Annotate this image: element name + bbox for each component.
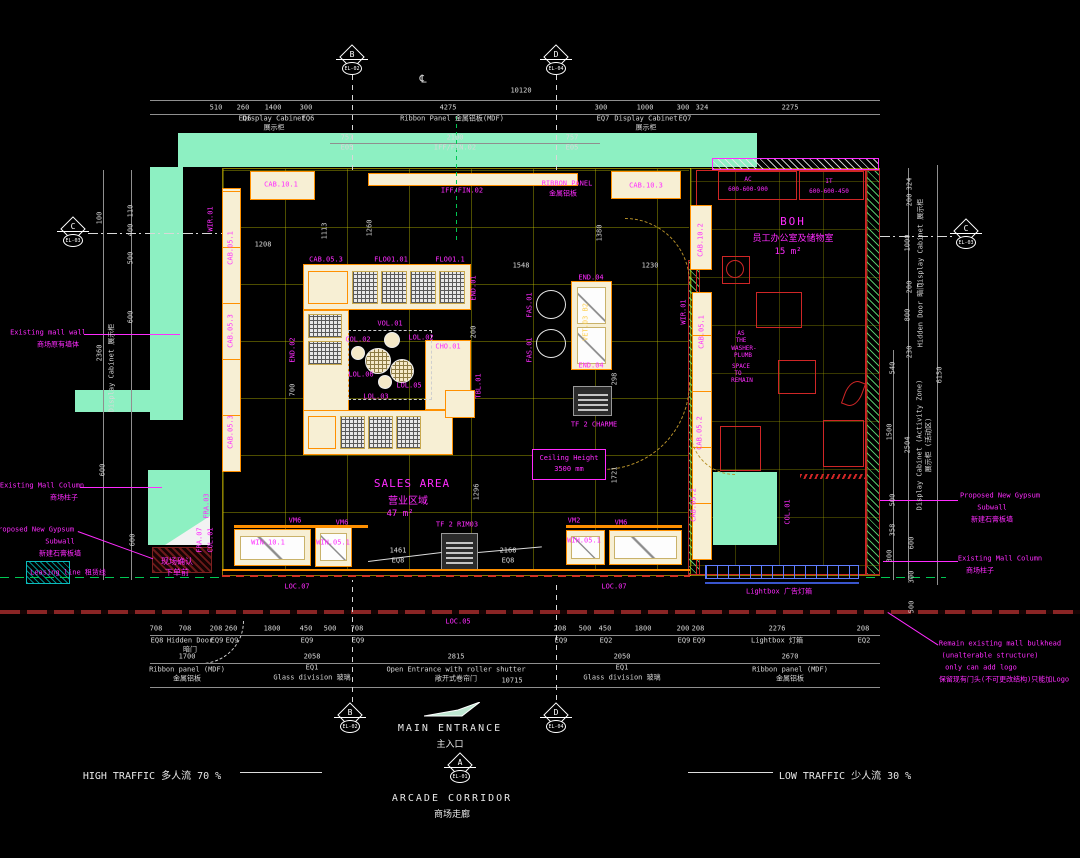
marker-code: EL-02 (342, 62, 362, 75)
cad-text: CAB.05.1 (228, 231, 235, 265)
cad-text: CAB.05.1 (699, 315, 706, 349)
cad-text: 2275 (782, 105, 799, 112)
cad-text: FLO01.1 (435, 257, 465, 264)
cad-text: 708 (351, 626, 364, 633)
cad-text: 208 (857, 626, 870, 633)
annotation-proposed-gypsum-right: Proposed New Gypsum (960, 493, 1040, 500)
stool[interactable] (378, 375, 392, 389)
cad-text: CAB.05.3 (309, 257, 343, 264)
boh-washer (778, 360, 816, 394)
cad-text: 2670 (782, 654, 799, 661)
cad-text: 现场确认 (161, 558, 193, 566)
cad-text: 260 (237, 105, 250, 112)
cad-text: 600-600-450 (809, 189, 849, 195)
bulkhead-hatch-top (712, 158, 879, 170)
cad-text: 商场柱子 (966, 568, 994, 575)
traffic-line (240, 772, 322, 773)
cad-text: 450 (599, 626, 612, 633)
cad-text: EQ9 (693, 638, 706, 645)
cad-text: 208 (210, 626, 223, 633)
cad-text: 600 (130, 534, 137, 547)
lightbox-underline (705, 582, 859, 584)
cad-text: 324 (696, 105, 709, 112)
cad-text: 300 (887, 550, 894, 563)
cad-text: WIH.05.1 (567, 538, 601, 545)
cad-text: Lightbox 灯箱 (751, 638, 803, 645)
cad-text: LOL.03 (363, 394, 388, 401)
cad-text: 1500 (887, 424, 894, 441)
cad-text: VOL.01 (377, 321, 402, 328)
cad-text: CAB.05.2 (697, 416, 704, 450)
cad-text: 708 (179, 626, 192, 633)
existing-mall-wall-left (150, 167, 183, 420)
cad-text: 2050 (614, 654, 631, 661)
marker-dropline (556, 74, 557, 170)
cad-text: Open Entrance with roller shutter (386, 667, 525, 674)
cad-text: 757 (566, 135, 579, 142)
display-tray (352, 271, 378, 304)
cab-10-1-label: CAB.10.1 (264, 182, 298, 189)
cad-text: 1296 (474, 484, 481, 501)
cad-text: 510 (210, 105, 223, 112)
cad-text: 208 (554, 626, 567, 633)
cad-text: 10120 (510, 88, 531, 95)
display-tray (368, 416, 393, 449)
cad-text: 200 (907, 281, 914, 294)
floorplan-canvas: Ceiling Height 3500 mm B EL-02 D EL-04 C… (0, 0, 1080, 858)
cad-text: 1400 (265, 105, 282, 112)
cad-text: EQ9 (678, 638, 691, 645)
boh-title: BOH (780, 215, 806, 228)
cad-text: EQ8 (392, 558, 405, 565)
cad-text: 800 (905, 309, 912, 322)
cad-text: 金属铝板 (173, 676, 201, 683)
marker-dropline (352, 580, 353, 712)
cad-text: 110 (128, 205, 135, 218)
glass-pane (320, 533, 347, 561)
cad-text: 2100 (447, 135, 464, 142)
cad-text: 展示柜 (264, 125, 285, 132)
boh-cabinet (756, 292, 802, 328)
wall-hatch-right (866, 170, 880, 575)
cad-text: Ribbon panel (MDF) (752, 667, 828, 674)
cad-text: 1721 (612, 467, 619, 484)
cad-text: EQ7 (597, 116, 610, 123)
display-tray (396, 416, 421, 449)
cad-text: EQ1 (616, 665, 629, 672)
cad-text: LOC.07 (284, 584, 309, 591)
cad-text: 1000 (637, 105, 654, 112)
boh-size: 15 m² (774, 247, 801, 257)
cad-text: CAB.10.2 (698, 223, 705, 257)
cad-text: IFF/FIN.02 (441, 188, 483, 195)
leasing-line-right (866, 577, 946, 578)
display-tray (439, 271, 465, 304)
cad-text: LOL.02 (408, 335, 433, 342)
cad-text: EQ9 (211, 638, 224, 645)
cad-text: 708 (150, 626, 163, 633)
boh-room-it (799, 171, 864, 200)
chair[interactable] (536, 290, 566, 319)
cad-text: TF 2 CHARME (571, 422, 617, 429)
sales-area-cn: 营业区域 (388, 492, 428, 507)
storefront-line (222, 569, 690, 571)
arcade-corridor-cn: 商场走廊 (434, 807, 470, 820)
wavy-line (800, 474, 866, 479)
cad-text: 10715 (501, 678, 522, 685)
traffic-line (688, 772, 773, 773)
cad-text: (unalterable structure) (942, 653, 1039, 660)
cad-text: Hidden Door (167, 638, 213, 645)
cad-text: FAS.01 (527, 292, 534, 317)
cad-text: 600 (909, 537, 916, 550)
device-detail (446, 539, 473, 564)
cad-text: 2276 (769, 626, 786, 633)
cad-text: EQ6 (302, 116, 315, 123)
glass-pane (614, 536, 677, 559)
cad-text: EQ2 (600, 638, 613, 645)
cad-text: 100 (97, 212, 104, 225)
cad-text: VET.03 B2 (583, 303, 590, 341)
cad-text: CHO.01 (435, 344, 460, 351)
cad-text: 保留现有门头(不可更改结构)只能加Logo (939, 677, 1069, 684)
cad-text: COL.01 (785, 499, 792, 524)
cad-text: IT (825, 179, 832, 185)
cad-text: 757 (341, 135, 354, 142)
cad-text: Glass division 玻璃 (273, 675, 350, 682)
ceiling-height-line2: 3500 mm (533, 464, 605, 475)
cad-text: LOC.05 (445, 619, 470, 626)
cad-text: FLO01.01 (374, 257, 408, 264)
main-entrance-cn: 主入口 (436, 737, 463, 750)
cad-text: 1113 (322, 223, 329, 240)
cad-text: COL.01 (208, 527, 215, 552)
cad-text: 4275 (440, 105, 457, 112)
island-step[interactable] (445, 390, 475, 418)
cad-text: 324 (907, 178, 914, 191)
cad-text: 200 (677, 626, 690, 633)
cad-text: E05 (341, 145, 354, 152)
cad-text: 450 (300, 626, 313, 633)
cad-text: 1000 (905, 235, 912, 252)
cad-text: EQ9 (555, 638, 568, 645)
cad-text: 商场原有墙体 (37, 342, 79, 349)
cad-text: END.01 (471, 275, 478, 300)
cad-text: 新建石膏板墙 (39, 551, 81, 558)
leader-line (80, 487, 162, 488)
chair[interactable] (536, 329, 566, 358)
cad-text: 300 (300, 105, 313, 112)
cad-text: 300 (595, 105, 608, 112)
stool[interactable] (351, 346, 365, 360)
cad-text: 1230 (642, 263, 659, 270)
cad-text: 1260 (367, 220, 374, 237)
cad-text: Display Cabinet (614, 116, 677, 123)
cad-text: WIN.05.1 (316, 540, 350, 547)
cad-text: Hidden Door 暗门 (918, 283, 925, 348)
cad-text: 下单前 (165, 569, 189, 577)
cad-text: TBL.01 (476, 373, 483, 398)
cad-text: 500 (128, 252, 135, 265)
main-entrance-label: MAIN ENTRANCE (398, 723, 502, 734)
cad-text: VM6 (289, 518, 302, 525)
cad-text: EQ9 (226, 638, 239, 645)
cad-text: COL.02 (345, 337, 370, 344)
cad-text: CAB.10.3 (629, 183, 663, 190)
entrance-swing-arc (158, 578, 244, 664)
cad-text: 600-600-900 (728, 187, 768, 193)
leasing-line-left (0, 577, 222, 578)
cad-text: 500 (324, 626, 337, 633)
cad-text: CAB.05.2 (691, 488, 698, 522)
round-table[interactable] (390, 359, 414, 383)
cad-text: EQ8 (151, 638, 164, 645)
cad-text: 600 (128, 311, 135, 324)
cad-text: ℄ (419, 74, 426, 85)
ceiling-height-line1: Ceiling Height (533, 453, 605, 464)
marker-dropline (556, 580, 557, 710)
cad-text: 358 (890, 524, 897, 537)
display-tray (381, 271, 407, 304)
cad-text: 2504 (905, 437, 912, 454)
cad-text: EQ9 (352, 638, 365, 645)
display-tray (340, 416, 365, 449)
cad-text: END.02 (290, 337, 297, 362)
annotation-existing-mall-column-left: Existing Mall Column (0, 483, 84, 490)
cad-text: LOC.07 (601, 584, 626, 591)
cad-text: 300 (677, 105, 690, 112)
cad-text: END.04 (578, 363, 603, 370)
boh-desk (823, 420, 864, 467)
arcade-corridor-label: ARCADE CORRIDOR (392, 793, 512, 804)
cad-text: 金属铝板 (549, 191, 577, 198)
cad-text: LOL.05 (396, 383, 421, 390)
cad-text: 1208 (255, 242, 272, 249)
cad-text: 500 (890, 494, 897, 507)
marker-letter: B (343, 51, 361, 59)
cad-text: TF 2 RIM03 (436, 522, 478, 529)
cad-text: VM2 (568, 518, 581, 525)
cad-text: 208 (692, 626, 705, 633)
cad-text: 新建石膏板墙 (971, 517, 1013, 524)
display-tray (308, 314, 342, 338)
cad-text: WIR.01 (681, 299, 688, 324)
cad-text: Display Cabinet (Activity Zone) (917, 380, 924, 511)
cad-text: END.04 (578, 275, 603, 282)
sales-area-title: SALES AREA (374, 477, 450, 490)
cad-text: CAB.05.3 (228, 415, 235, 449)
cad-text: 540 (890, 362, 897, 375)
cad-text: 600 (100, 464, 107, 477)
cad-text: RIBBON PANEL (542, 181, 593, 188)
cad-text: THE (736, 338, 747, 344)
cad-text: 金属铝板 (776, 676, 804, 683)
marker-dashdot (88, 233, 222, 234)
cad-text: EQ2 (858, 638, 871, 645)
cad-text: 1700 (179, 654, 196, 661)
leader-line (84, 334, 180, 335)
storefront-dashed (222, 575, 690, 577)
cad-text: Glass division 玻璃 (583, 675, 660, 682)
cad-text: VM6 (615, 520, 628, 527)
cad-text: 2058 (304, 654, 321, 661)
cad-text: PLUMB (734, 353, 752, 359)
island-cell (308, 271, 348, 304)
entrance-arrow-icon (424, 702, 480, 717)
annotation-existing-mall-wall: Existing mall wall (10, 330, 86, 337)
cad-text: Display Cabinet 展示柜 (109, 324, 116, 412)
cad-text: 6150 (937, 367, 944, 384)
cad-text: 500 (909, 601, 916, 614)
sales-area-size: 47 m² (386, 509, 413, 519)
cad-text: LOL.06 (348, 372, 373, 379)
leader-line (887, 612, 938, 646)
annotation-proposed-gypsum-left: Proposed New Gypsum (0, 527, 74, 534)
cad-text: Lightbox 广告灯箱 (746, 589, 812, 596)
cad-text: FRA.03 (204, 493, 211, 518)
cad-text: EQ7 (679, 116, 692, 123)
leader-line (883, 561, 958, 562)
ceiling-height-box: Ceiling Height 3500 mm (532, 449, 606, 480)
cad-text: 700 (290, 384, 297, 397)
cad-text: 1461 (390, 548, 407, 555)
cad-text: WIN.10.1 (251, 540, 285, 547)
high-traffic-label: HIGH TRAFFIC 多人流 70 % (83, 767, 221, 782)
dim-line (150, 100, 880, 101)
display-tray (308, 341, 342, 365)
cad-text: FAS.01 (527, 337, 534, 362)
display-tray (410, 271, 436, 304)
cad-text: Subwall (977, 505, 1007, 512)
cad-text: EQ8 (502, 558, 515, 565)
cad-text: 1800 (635, 626, 652, 633)
cad-text: E05 (566, 145, 579, 152)
cad-text: VM6 (336, 520, 349, 527)
leader-line (78, 531, 154, 559)
cad-text: FRA.07 (197, 527, 204, 552)
cad-text: 1548 (513, 263, 530, 270)
cad-text: Ribbon panel (MDF) (149, 667, 225, 674)
cad-text: 2360 (97, 345, 104, 362)
cad-text: EQ9 (301, 638, 314, 645)
cad-text: AC (744, 177, 751, 183)
cad-text: CAB.05.3 (228, 314, 235, 348)
cad-text: 230 (907, 346, 914, 359)
cad-text: 298 (612, 373, 619, 386)
dim-line (893, 350, 894, 580)
low-traffic-label: LOW TRAFFIC 少人流 30 % (779, 767, 911, 782)
boh-cn: 员工办公室及储物室 (752, 231, 833, 244)
cad-text: 260 (225, 626, 238, 633)
cad-text: 1380 (597, 225, 604, 242)
marker-dropline (352, 74, 353, 170)
cad-text: Subwall (45, 539, 75, 546)
island-cell (308, 416, 336, 449)
boh-sink-basin (726, 260, 744, 278)
cad-text: Display Cabinet (242, 116, 305, 123)
stool[interactable] (384, 332, 400, 348)
lightbox-strip[interactable] (705, 565, 859, 579)
cad-text: 200 (907, 194, 914, 207)
cad-text: 500 (579, 626, 592, 633)
cad-text: 敞开式卷帘门 (435, 676, 477, 683)
dim-line (150, 663, 880, 664)
cad-text: Ribbon Panel 金属铝板(MDF) (400, 116, 504, 123)
cad-text: 展示柜 (636, 125, 657, 132)
cad-text: 展示柜 (活动区) (926, 418, 933, 473)
annotation-existing-mall-column-right: Existing Mall Column (958, 556, 1042, 563)
cad-text: 商场柱子 (50, 495, 78, 502)
cad-text: 300 (909, 571, 916, 584)
cad-text: IFF/FIN.02 (434, 145, 476, 152)
dim-line (150, 687, 880, 688)
cad-text: 2815 (448, 654, 465, 661)
cad-text: 1800 (264, 626, 281, 633)
mall-bulkhead-line (0, 610, 1080, 614)
annotation-leasing-line: Leasing line 租赁线 (30, 570, 106, 577)
cad-text: REMAIN (731, 378, 753, 384)
cad-text: 200 (471, 326, 478, 339)
annotation-bulkhead-note: Remain existing mall bulkhead (939, 641, 1061, 648)
cad-text: 400 (128, 224, 135, 237)
cad-text: WIR.01 (208, 206, 215, 231)
dim-line (908, 168, 909, 580)
cad-text: only can add logo (945, 665, 1017, 672)
dim-line (103, 170, 104, 580)
centerline-green (456, 112, 457, 240)
cad-text: EQ1 (306, 665, 319, 672)
cad-text: Display Cabinet 展示柜 (918, 199, 925, 287)
cad-text: 2168 (500, 548, 517, 555)
